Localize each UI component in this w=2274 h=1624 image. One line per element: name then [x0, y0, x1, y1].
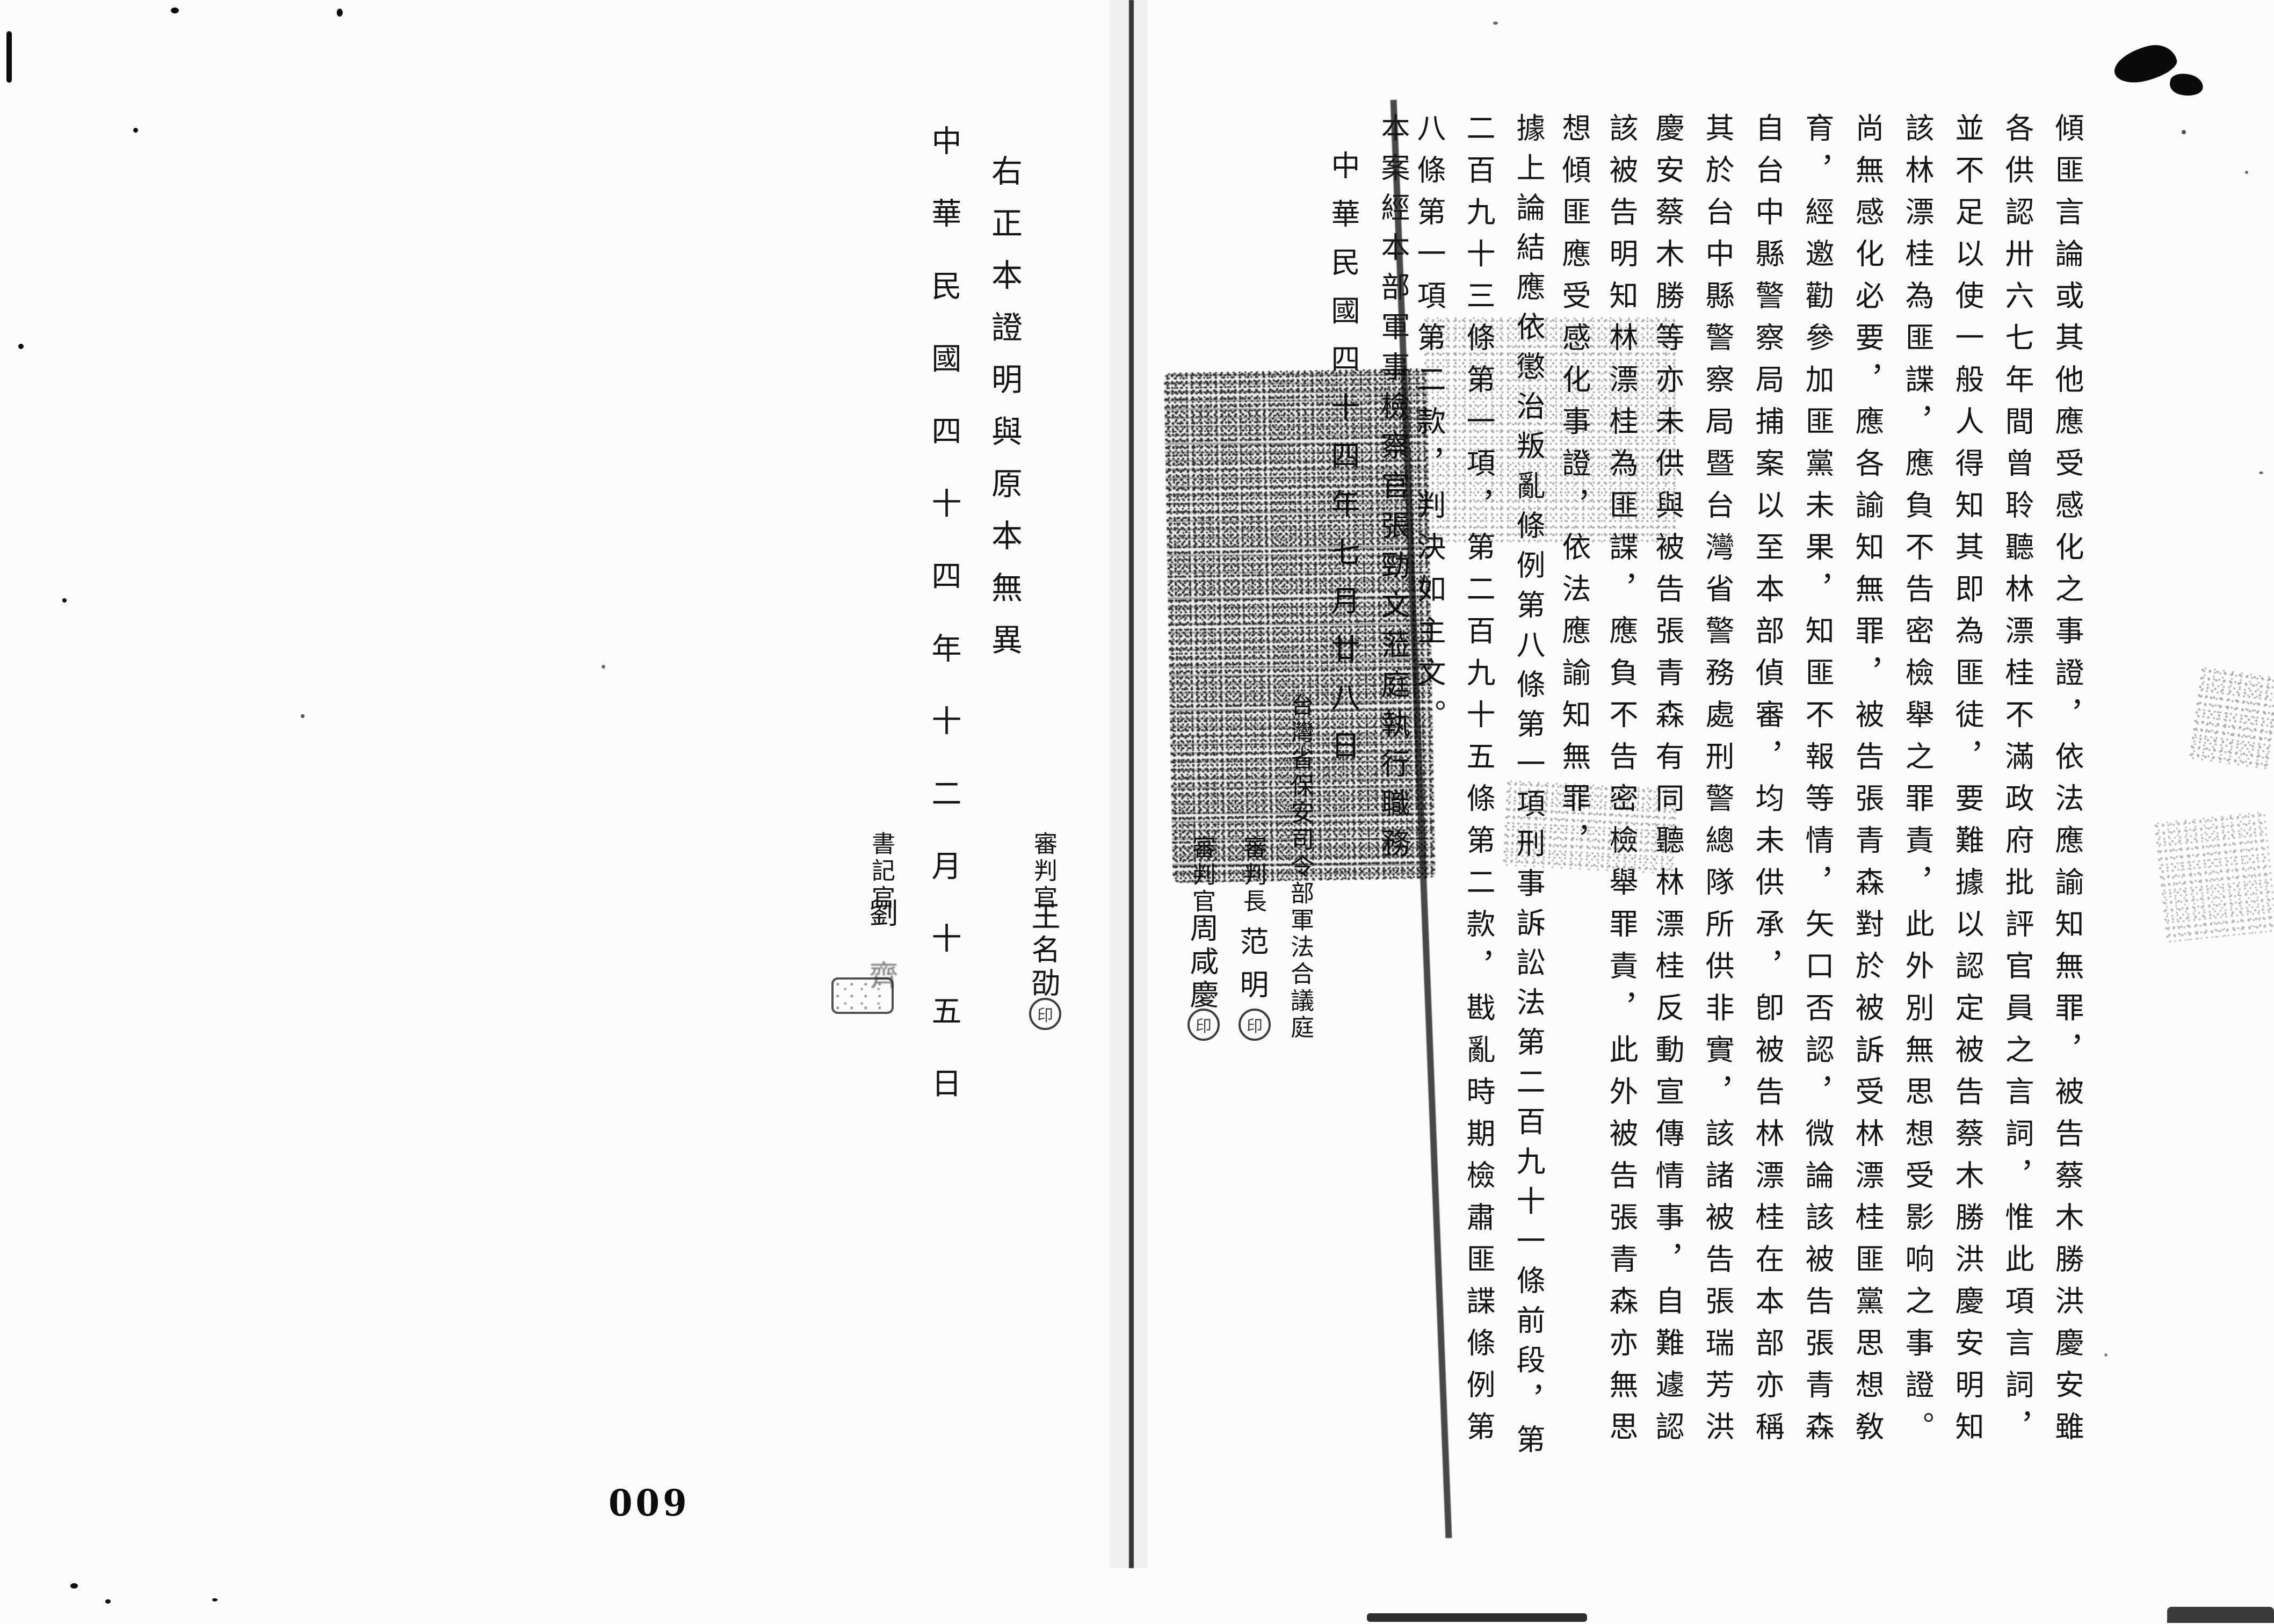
ink-blot-top-right-2 — [2168, 71, 2205, 98]
ink-speck — [62, 598, 67, 603]
judge3-name: 王名劭 — [1029, 901, 1058, 1001]
ink-speck — [105, 1599, 111, 1604]
seal-glyph: 印 — [1247, 1013, 1263, 1036]
ink-speck — [602, 665, 605, 669]
bottom-edge-streak — [1367, 1613, 1587, 1622]
body-column-6: 育，經邀勸參加匪黨未果，知匪不報等情，矢口否認，微論該被告張青森 — [1802, 113, 1831, 1453]
binding-shadow — [1110, 0, 1147, 1568]
ink-speck — [133, 128, 138, 133]
ink-speck — [6, 31, 12, 83]
edge-stamp-smudge-2 — [2153, 811, 2274, 943]
seal-glyph: 印 — [1196, 1013, 1212, 1036]
large-overstamp-light — [1423, 317, 1676, 542]
body-column-13-legal-citation: 二百九十三條第一項，第二百九十五條第二款，戡亂時期檢肅匪諜條例第 — [1464, 113, 1493, 1453]
page-number: 009 — [609, 1482, 690, 1525]
presiding-judge-name: 范明 — [1237, 926, 1266, 1012]
ink-speck — [212, 1598, 218, 1601]
ink-speck — [2182, 130, 2186, 134]
edge-stamp-smudge-1 — [2188, 666, 2274, 770]
ink-speck — [2245, 171, 2248, 174]
seal-glyph: 印 — [1037, 1002, 1053, 1026]
judge2-name: 周咸慶 — [1187, 913, 1216, 1013]
ink-blot-top-right — [2110, 40, 2179, 88]
judge3-title: 審判官 — [1031, 831, 1055, 912]
body-column-4: 該林漂桂為匪諜，應負不告密檢舉之罪責，此外別無思想受影响之事證。 — [1902, 113, 1931, 1453]
ink-speck — [337, 9, 343, 17]
ink-speck — [70, 1583, 78, 1589]
certification-date: 中華民國四十四年十二月十五日 — [929, 125, 959, 1140]
clerk-name-1: 劉 — [866, 898, 895, 940]
ink-speck — [2104, 1353, 2108, 1357]
body-column-1: 傾匪言論或其他應受感化之事證，依法應諭知無罪，被告蔡木勝洪慶安雖 — [2052, 113, 2081, 1453]
ink-speck — [1493, 21, 1498, 25]
judge2-seal-icon: 印 — [1187, 1009, 1220, 1041]
body-column-3: 並不足以使一般人得知其即為匪徒，要難據以認定被告蔡木勝洪慶安明知 — [1952, 113, 1981, 1453]
large-overstamp-dense — [1164, 368, 1436, 883]
presiding-judge-seal-icon: 印 — [1239, 1009, 1271, 1041]
ink-speck — [18, 344, 24, 349]
body-column-9: 慶安蔡木勝等亦未供與被告張青森有同聽林漂桂反動宣傳情事，自難遽認 — [1653, 113, 1682, 1453]
body-column-10: 該被告明知林漂桂為匪諜，應負不告密檢舉罪責，此外被告張青森亦無思 — [1606, 113, 1635, 1453]
body-column-5: 尚無感化必要，應各諭知無罪，被告張青森對於被訴受林漂桂匪黨思想敎 — [1852, 113, 1881, 1453]
ink-speck — [2259, 472, 2263, 474]
certification-statement: 右正本證明與原本無異 — [989, 155, 1020, 676]
ink-speck — [171, 8, 179, 13]
scanned-judgment-page: 傾匪言論或其他應受感化之事證，依法應諭知無罪，被告蔡木勝洪慶安雖 各供認卅六七年… — [0, 0, 2274, 1624]
ink-speck — [301, 714, 305, 718]
clerk-rect-seal — [831, 977, 894, 1014]
body-column-8: 其於台中縣警察局暨台灣省警務處刑警總隊所供非實，該諸被告張瑞芳洪 — [1703, 113, 1732, 1453]
body-column-2: 各供認卅六七年間曾聆聽林漂桂不滿政府批評官員之言詞，惟此項言詞， — [2002, 113, 2031, 1453]
overstamp-streak — [1502, 780, 1678, 875]
judge3-seal-icon: 印 — [1029, 998, 1061, 1030]
body-column-7: 自台中縣警察局捕案以至本部偵審，均未供承，卽被告林漂桂在本部亦稱 — [1752, 113, 1781, 1453]
bottom-corner-mark — [2167, 1607, 2274, 1623]
